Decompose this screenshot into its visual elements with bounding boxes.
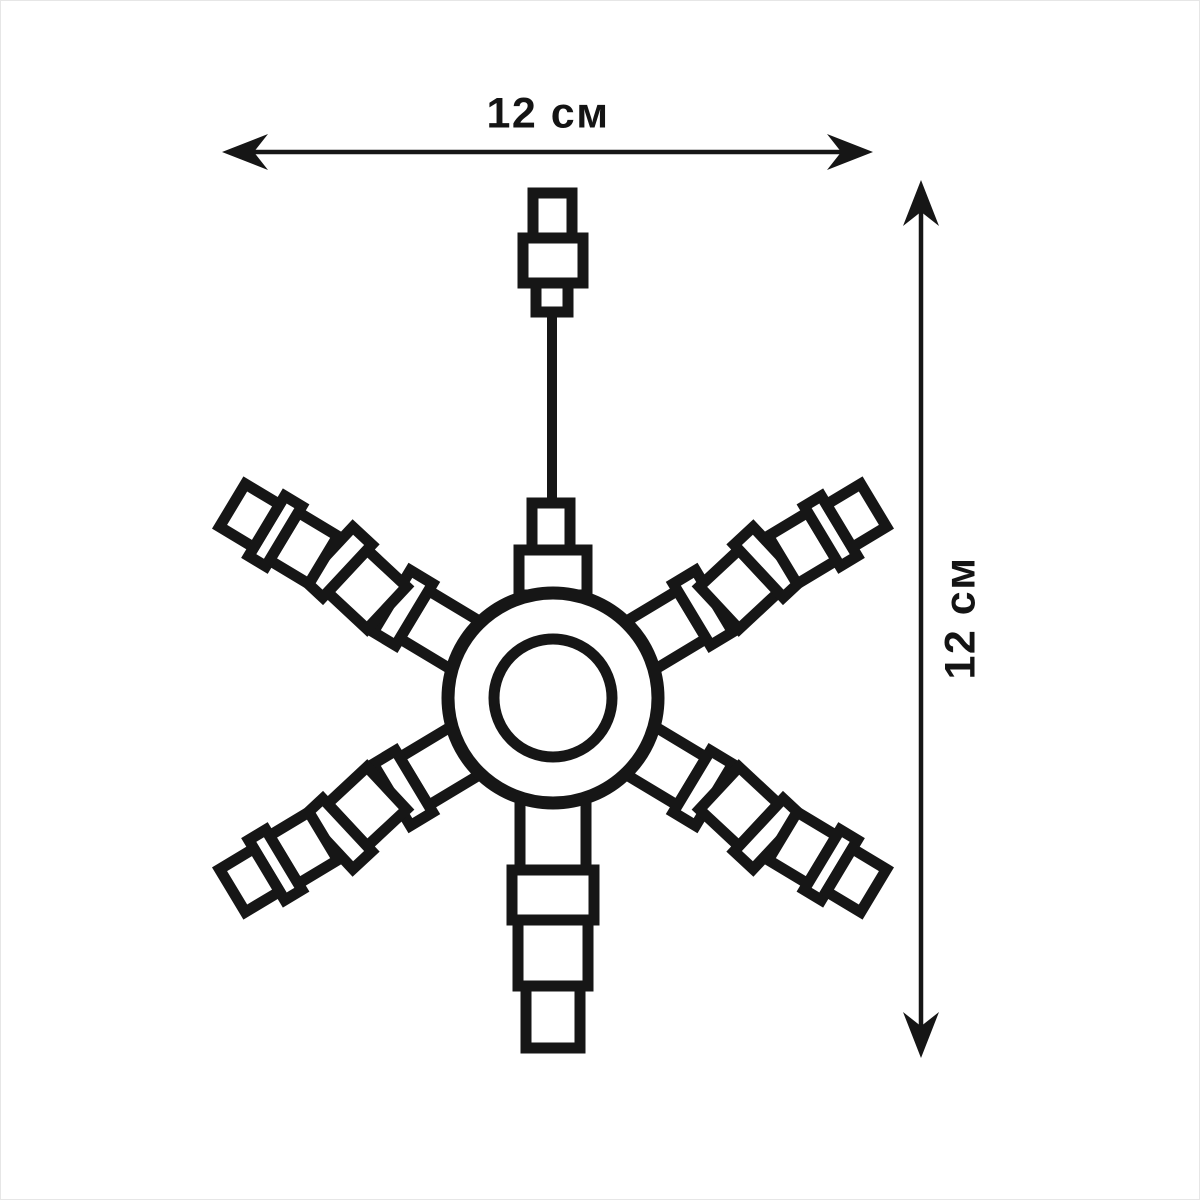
arm-upper-left (210, 468, 490, 684)
height-dimension-label: 12 см (937, 557, 986, 680)
width-dimension-label: 12 см (487, 90, 610, 139)
power-cord-and-plug (523, 193, 583, 510)
plug-body (523, 238, 583, 283)
width-dimension-arrow (222, 134, 873, 170)
snowflake-technical-drawing (0, 0, 1200, 1200)
plug-neck (536, 283, 568, 312)
arm-upper-right (616, 468, 896, 684)
arm-lower-left (210, 712, 490, 928)
arm-lower-right (616, 712, 896, 928)
arm-bottom (512, 794, 594, 1048)
socket-neck (532, 503, 570, 550)
diagram-canvas: 12 см 12 см (0, 0, 1200, 1200)
height-dimension-arrow (903, 180, 939, 1058)
cord-socket (519, 503, 587, 595)
hub-inner-circle (494, 639, 612, 757)
snowflake-hub (448, 593, 658, 803)
plug-tip (533, 193, 572, 238)
